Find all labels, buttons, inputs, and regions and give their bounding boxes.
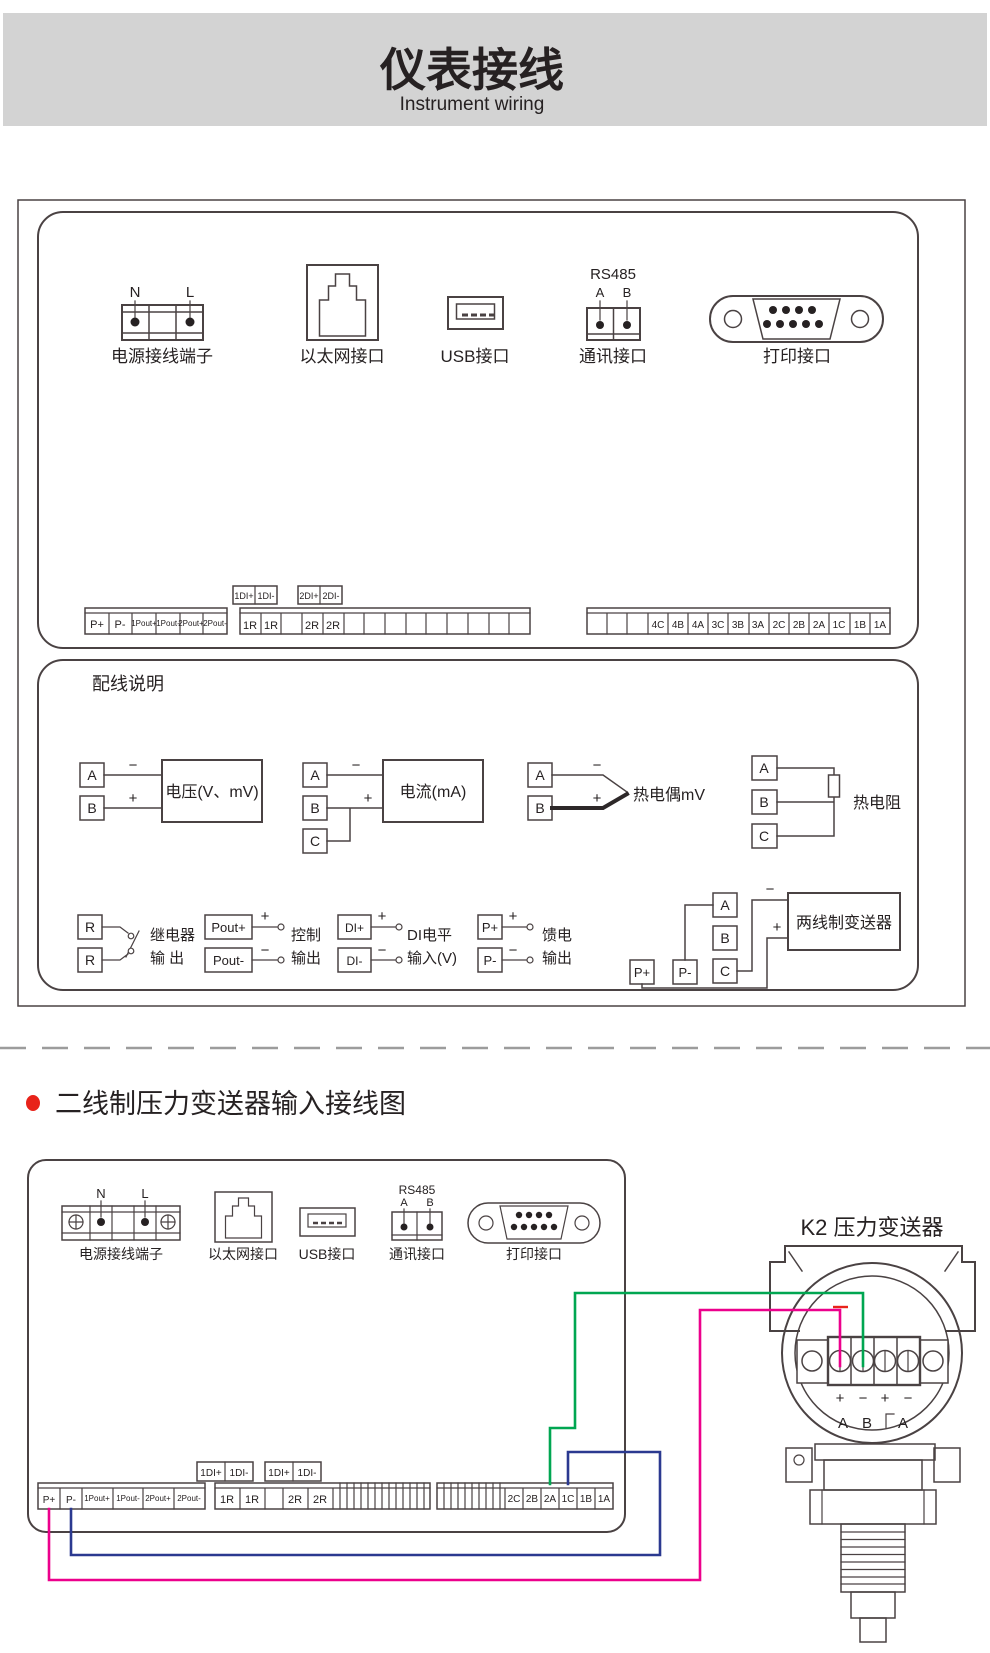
- voltage-input-wiring: A B − + 电压(V、mV): [80, 757, 262, 822]
- di-cell: 1DI+: [268, 1468, 290, 1479]
- terminal-a: A: [310, 767, 320, 783]
- di-cell: 1DI-: [257, 591, 274, 601]
- panel2-rear-view: N L 电源接线端子 以太网接口 USB接口 R: [28, 1160, 625, 1532]
- p-plus: P+: [634, 965, 650, 980]
- transmitter-body: [786, 1444, 960, 1642]
- db9-outline: [710, 296, 883, 342]
- minus-sign: −: [352, 757, 361, 774]
- wires: [642, 900, 788, 988]
- terminal-cell: P+: [90, 619, 104, 631]
- control-label-2: 输出: [291, 950, 321, 967]
- two-wire-transmitter-wiring: P+ P- A B C − + 两线制变送器: [630, 881, 900, 988]
- terminal-b: B: [310, 800, 319, 816]
- terminal-b: B: [720, 930, 729, 946]
- terminal-cell: 1B: [854, 620, 867, 631]
- terminal-cell: 2Pout-: [203, 619, 227, 628]
- plus-sign: +: [509, 908, 518, 925]
- db9-screw-left: [479, 1216, 493, 1230]
- thread-lines: [841, 1532, 905, 1584]
- current-input-wiring: A B C − + 电流(mA): [303, 757, 483, 853]
- panel2-middle-strip: 1R 1R 2R 2R: [215, 1483, 430, 1509]
- usb-label: USB接口: [299, 1246, 356, 1262]
- rs485-a-label: A: [596, 285, 605, 300]
- minus-sign: −: [766, 881, 775, 898]
- wiring-instructions-box: 配线说明 A B − + 电压(V、mV) A B C: [38, 660, 918, 990]
- terminal-cell: 1R: [245, 1494, 259, 1506]
- terminal-cell: P-: [115, 619, 126, 631]
- terminal-circle: [527, 924, 533, 930]
- di-cell: 2DI-: [322, 591, 339, 601]
- terminal-cell: 2R: [326, 620, 340, 632]
- db9-label: 打印接口: [506, 1246, 562, 1262]
- thermocouple-label: 热电偶mV: [633, 786, 705, 804]
- terminal-r2: R: [85, 952, 95, 968]
- db9-print-port: 打印接口: [468, 1203, 600, 1262]
- terminal-sign: +: [836, 1390, 845, 1407]
- wire-plus-thick: [552, 794, 627, 808]
- relay-label-2: 输 出: [150, 950, 184, 967]
- contact-dot: [128, 948, 134, 954]
- di-cell: 1DI+: [200, 1468, 222, 1479]
- usb-port: USB接口: [441, 297, 510, 366]
- section2-title: 二线制压力变送器输入接线图: [55, 1089, 406, 1119]
- terminal-cell: P-: [66, 1495, 76, 1506]
- power-n-label: N: [96, 1186, 105, 1201]
- relay-output-wiring: R R 继电器 输 出: [78, 915, 195, 972]
- rs485-dividers: [392, 1212, 442, 1240]
- terminal-cell: 2R: [288, 1494, 302, 1506]
- feed-output-wiring: P+ P- + − 馈电 输出: [478, 908, 572, 972]
- terminal-cell: 2C: [508, 1494, 521, 1505]
- di-plus: DI+: [345, 921, 364, 935]
- terminal-cell: 1Pout-: [156, 619, 180, 628]
- p-minus: P-: [679, 965, 692, 980]
- bracket-mark: [886, 1414, 894, 1428]
- power-terminal-label: 电源接线端子: [111, 347, 213, 366]
- terminal-circle: [278, 924, 284, 930]
- terminal-cell: 2Pout+: [145, 1494, 171, 1503]
- terminal-cell: 2B: [526, 1494, 539, 1505]
- terminal-cell: 1R: [264, 620, 278, 632]
- current-label: 电流(mA): [400, 783, 467, 801]
- terminal-b: B: [759, 794, 768, 810]
- minus-sign: −: [129, 757, 138, 774]
- terminal-b: B: [87, 800, 96, 816]
- plus-sign: +: [593, 790, 602, 807]
- panel1-right-strip: 4C 4B 4A 3C 3B 3A 2C 2B 2A 1C 1B 1A: [587, 608, 890, 634]
- terminal-cell: 2B: [793, 620, 806, 631]
- hex-nut-facets: [822, 1490, 924, 1524]
- ethernet-port: 以太网接口: [208, 1192, 278, 1262]
- terminal-cell: 4A: [692, 620, 705, 631]
- rs485-b-dot: [623, 321, 631, 329]
- terminal-sign: +: [881, 1390, 890, 1407]
- di-cell: 1DI+: [234, 591, 253, 601]
- panel2-left-strip: P+ P- 1Pout+ 1Pout- 2Pout+ 2Pout-: [38, 1483, 205, 1509]
- usb-label: USB接口: [441, 347, 510, 366]
- terminal-cell: 1B: [580, 1494, 593, 1505]
- rs485-dividers: [587, 308, 640, 340]
- minus-sign: −: [509, 942, 518, 959]
- panel2-right-strip: 2C 2B 2A 1C 1B 1A: [437, 1483, 613, 1509]
- rs485-b-label: B: [426, 1197, 433, 1209]
- wire-minus: [552, 775, 627, 792]
- plus-sign: +: [364, 790, 373, 807]
- feed-label-2: 输出: [542, 950, 572, 967]
- wires: [777, 768, 834, 836]
- di-cell: 1DI-: [298, 1468, 317, 1479]
- db9-screw-right: [575, 1216, 589, 1230]
- mount-hole-right: [923, 1351, 943, 1371]
- rtd-label: 热电阻: [853, 794, 901, 812]
- terminal-letter: B: [862, 1415, 872, 1432]
- db9-screw-right: [852, 311, 869, 328]
- terminal-b: B: [535, 800, 544, 816]
- terminal-c: C: [310, 833, 320, 849]
- rs485-label: 通讯接口: [579, 347, 647, 366]
- ethernet-outline: [307, 265, 378, 340]
- terminal-circle: [396, 924, 402, 930]
- feed-label-1: 馈电: [542, 927, 572, 944]
- panel1-di-boxes: 1DI+ 1DI- 2DI+ 2DI-: [233, 586, 342, 604]
- terminal-r1: R: [85, 919, 95, 935]
- terminal-letter: A: [898, 1415, 908, 1432]
- control-label-1: 控制: [291, 927, 321, 944]
- relay-label-1: 继电器: [150, 927, 195, 944]
- transmitter-title: K2 压力变送器: [800, 1215, 943, 1240]
- pout-plus: Pout+: [211, 920, 245, 935]
- side-lug-hole: [794, 1455, 804, 1465]
- db9-screw-left: [725, 311, 742, 328]
- terminal-letter: A: [838, 1415, 848, 1432]
- pout-minus: Pout-: [213, 953, 244, 968]
- terminal-cell: 2R: [305, 620, 319, 632]
- switch-wires: [102, 927, 139, 960]
- terminal-cell: P+: [43, 1495, 56, 1506]
- plus-sign: +: [261, 908, 270, 925]
- usb-connector-icon: [457, 304, 495, 319]
- p-plus: P+: [482, 920, 498, 935]
- terminal-circle: [396, 957, 402, 963]
- red-bullet-icon: [26, 1095, 40, 1111]
- wires: [327, 775, 383, 841]
- rs485-a-dot: [596, 321, 604, 329]
- terminal-cell: 1Pout+: [131, 619, 157, 628]
- terminal-cell: 1Pout-: [116, 1494, 140, 1503]
- terminal-cell: 2R: [313, 1494, 327, 1506]
- rs485-port: RS485 A B 通讯接口: [579, 266, 647, 366]
- db9-shell: [753, 299, 840, 339]
- panel2-di-boxes: 1DI+ 1DI- 1DI+ 1DI-: [197, 1462, 321, 1481]
- pressure-tip: [860, 1618, 886, 1642]
- power-n-label: N: [130, 284, 141, 301]
- wiring-diagram-canvas: 仪表接线 Instrument wiring N L 电源接线端子 以太网接口: [0, 0, 990, 1653]
- minus-sign: −: [378, 942, 387, 959]
- terminal-a: A: [535, 767, 545, 783]
- rs485-a-label: A: [400, 1197, 408, 1209]
- stub-step: [851, 1592, 895, 1618]
- di-cell: 1DI-: [230, 1468, 249, 1479]
- rs485-title: RS485: [399, 1183, 436, 1197]
- di-label-2: 输入(V): [407, 950, 457, 967]
- terminal-cell: 1A: [874, 620, 887, 631]
- db9-print-port: 打印接口: [710, 296, 883, 366]
- contact-dot: [128, 933, 134, 939]
- neck-body: [824, 1460, 922, 1490]
- terminal-a: A: [759, 760, 769, 776]
- terminal-cell: 1Pout+: [84, 1494, 110, 1503]
- ethernet-label: 以太网接口: [208, 1246, 278, 1262]
- magenta-supply-wire: [49, 1310, 840, 1580]
- page-title: 仪表接线: [379, 44, 564, 96]
- terminal-cell: 2Pout-: [177, 1494, 201, 1503]
- terminal-a: A: [87, 767, 97, 783]
- di-minus: DI-: [347, 954, 363, 968]
- terminal-cell: 1A: [598, 1494, 611, 1505]
- mount-hole-left: [802, 1351, 822, 1371]
- rtd-input-wiring: A B C 热电阻: [752, 756, 901, 848]
- terminal-a: A: [720, 897, 730, 913]
- power-n-dot: [97, 1218, 105, 1226]
- power-leader-lines: [135, 301, 190, 317]
- terminal-cell: 4C: [652, 620, 665, 631]
- instrument-wiring-page: 仪表接线 Instrument wiring N L 电源接线端子 以太网接口: [0, 0, 990, 1653]
- rj45-jack-icon: [320, 274, 366, 336]
- panel1-middle-strip: 1R 1R 2R 2R: [240, 608, 530, 634]
- power-leader-lines: [101, 1201, 145, 1217]
- power-terminal: N L 电源接线端子: [62, 1186, 180, 1262]
- transmitter-label: 两线制变送器: [796, 914, 892, 932]
- rs485-port: RS485 A B 通讯接口: [389, 1183, 445, 1262]
- section2-heading: 二线制压力变送器输入接线图: [26, 1089, 406, 1119]
- terminal-cell: 2C: [773, 620, 786, 631]
- terminal-cell: 1C: [833, 620, 846, 631]
- terminal-sign: −: [904, 1390, 913, 1407]
- flange-chamfer-marks: [789, 1252, 958, 1271]
- terminal-cell: 3A: [752, 620, 765, 631]
- db9-shell: [500, 1206, 568, 1239]
- plus-sign: +: [773, 919, 782, 936]
- minus-sign: −: [261, 942, 270, 959]
- power-l-dot: [141, 1218, 149, 1226]
- power-terminal: N L 电源接线端子: [111, 284, 213, 366]
- rs485-a-dot: [401, 1224, 408, 1231]
- terminal-circle: [278, 957, 284, 963]
- terminal-cell: 2Pout+: [178, 619, 204, 628]
- usb-port: USB接口: [299, 1208, 356, 1262]
- terminal-cell: 3B: [732, 620, 745, 631]
- power-n-dot: [131, 318, 140, 327]
- control-output-wiring: Pout+ Pout- + − 控制 输出: [205, 908, 321, 972]
- flange-outline: [770, 1246, 975, 1331]
- rj45-jack-icon: [226, 1198, 262, 1238]
- hex-nut: [810, 1490, 936, 1524]
- p-minus: P-: [484, 953, 497, 968]
- rs485-b-dot: [427, 1224, 434, 1231]
- db9-outline: [468, 1203, 600, 1243]
- terminal-cell: 1R: [220, 1494, 234, 1506]
- rs485-label: 通讯接口: [389, 1246, 445, 1262]
- panel1-rear-view: N L 电源接线端子 以太网接口 USB接口 RS485 A B: [18, 200, 965, 1006]
- db9-pins: [511, 1212, 557, 1230]
- wiring-title: 配线说明: [92, 674, 164, 694]
- terminal-cell: 3C: [712, 620, 725, 631]
- threaded-stub: [841, 1524, 905, 1592]
- side-lug-right: [934, 1448, 960, 1482]
- rs485-b-label: B: [623, 285, 632, 300]
- connection-wires: [49, 1293, 863, 1580]
- power-l-label: L: [186, 284, 194, 301]
- terminal-c: C: [759, 828, 769, 844]
- ethernet-label: 以太网接口: [300, 347, 385, 366]
- plus-sign: +: [129, 790, 138, 807]
- terminal-cell: 2A: [813, 620, 826, 631]
- panel1-ports-box: [38, 212, 918, 648]
- terminal-circle: [527, 957, 533, 963]
- strip-hatch: [340, 1483, 424, 1509]
- terminal-cell: 1R: [243, 620, 257, 632]
- power-l-label: L: [141, 1186, 148, 1201]
- plus-sign: +: [378, 908, 387, 925]
- di-label-1: DI电平: [407, 927, 452, 944]
- di-cell: 2DI+: [299, 591, 318, 601]
- db9-pins: [763, 306, 823, 328]
- rs485-title: RS485: [590, 266, 636, 283]
- panel1-outer-frame: [18, 200, 965, 1006]
- power-terminal-label: 电源接线端子: [79, 1246, 163, 1262]
- header-banner: 仪表接线 Instrument wiring: [3, 13, 987, 126]
- panel2-outline: [28, 1160, 625, 1532]
- terminal-sign: −: [859, 1390, 868, 1407]
- strip-hatch: [444, 1483, 500, 1509]
- terminal-cell: 1C: [562, 1494, 575, 1505]
- terminal-c: C: [720, 963, 730, 979]
- terminal-cell: 4B: [672, 620, 685, 631]
- strip-dividers: [240, 613, 530, 634]
- minus-sign: −: [593, 757, 602, 774]
- ethernet-port: 以太网接口: [300, 265, 385, 366]
- panel1-left-strip: P+ P- 1Pout+ 1Pout- 2Pout+ 2Pout-: [85, 608, 227, 634]
- page-subtitle: Instrument wiring: [400, 94, 545, 115]
- resistor-icon: [829, 775, 840, 797]
- green-signal-wire: [550, 1293, 863, 1484]
- k2-pressure-transmitter: K2 压力变送器 + − + − A B A: [770, 1215, 975, 1642]
- neck-band: [815, 1444, 935, 1460]
- voltage-label: 电压(V、mV): [165, 783, 258, 801]
- db9-label: 打印接口: [763, 347, 831, 366]
- terminal-cell: 2A: [544, 1494, 557, 1505]
- usb-connector-icon: [308, 1214, 346, 1227]
- thermocouple-input-wiring: A B − + 热电偶mV: [528, 757, 705, 820]
- power-l-dot: [186, 318, 195, 327]
- ethernet-outline: [215, 1192, 272, 1242]
- transmitter-terminal-block: + − + − A B A: [797, 1337, 948, 1432]
- di-input-wiring: DI+ DI- + − DI电平 输入(V): [338, 908, 457, 972]
